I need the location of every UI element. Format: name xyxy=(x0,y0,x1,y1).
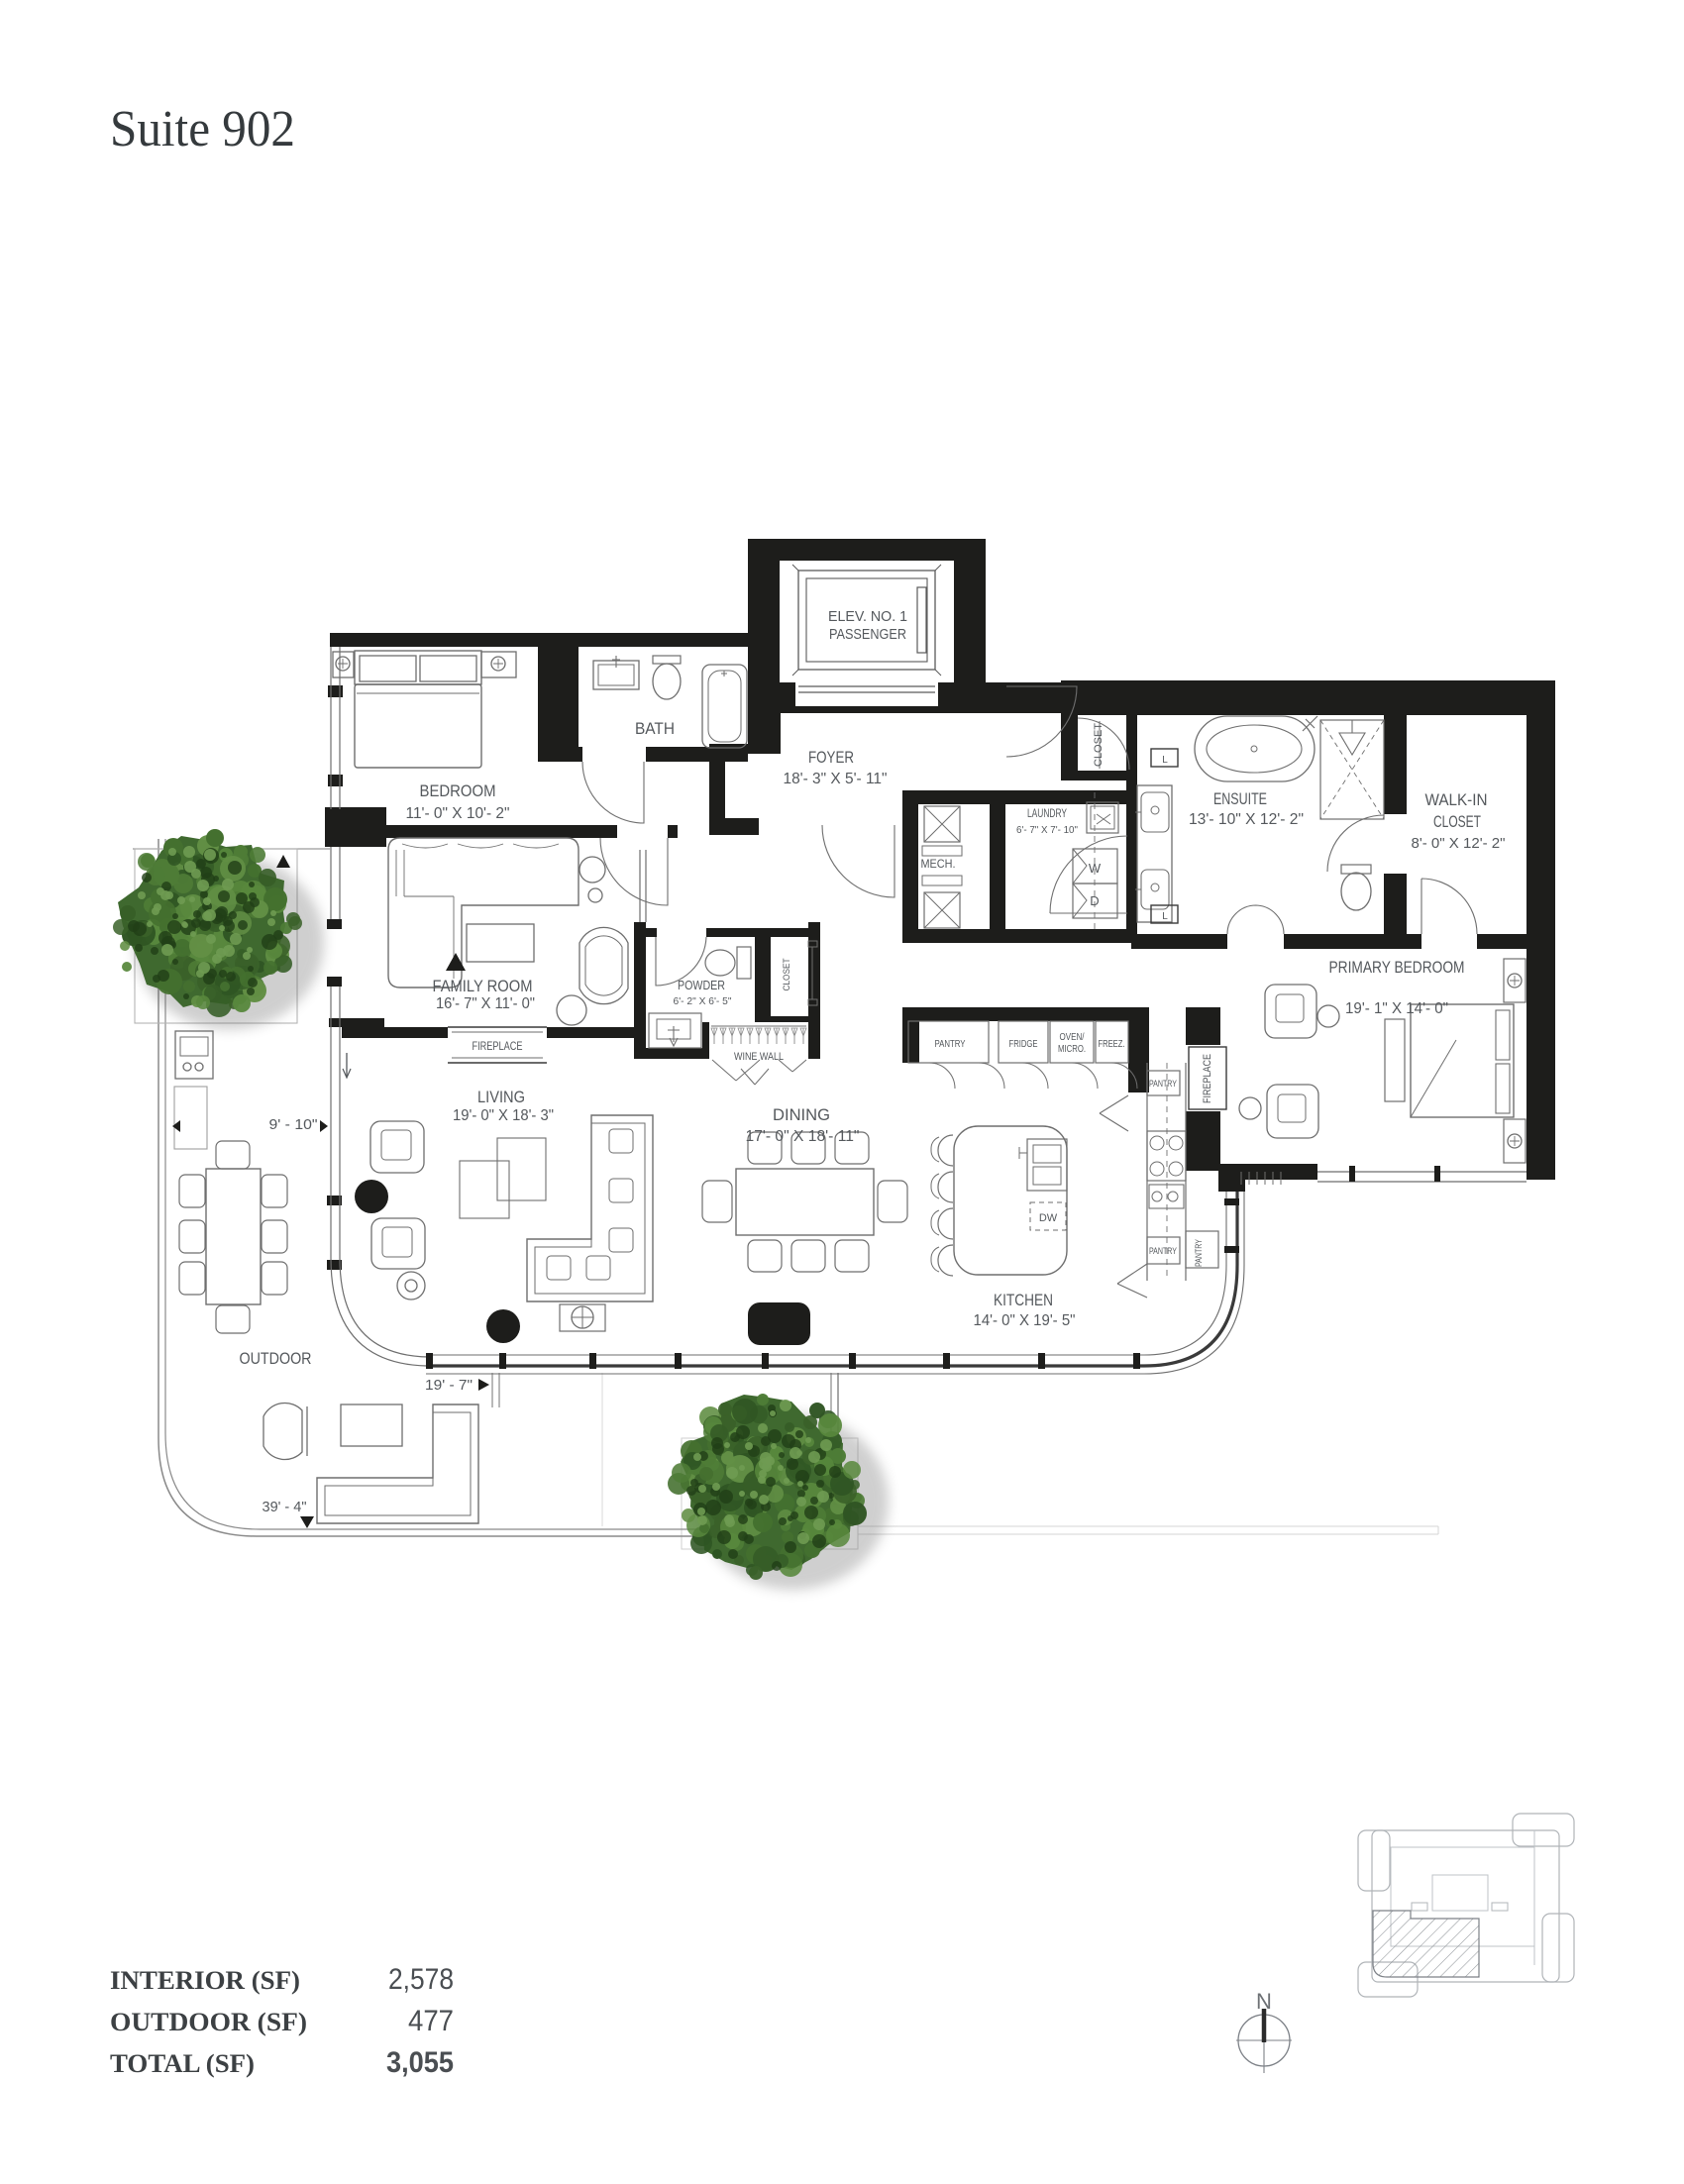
svg-text:Suite 902: Suite 902 xyxy=(110,101,295,157)
svg-text:CLOSET: CLOSET xyxy=(782,958,792,990)
svg-text:BATH: BATH xyxy=(635,719,675,738)
svg-text:LIVING: LIVING xyxy=(477,1088,525,1106)
svg-text:18'- 3" X 5'- 11": 18'- 3" X 5'- 11" xyxy=(784,771,888,787)
svg-text:CLOSET: CLOSET xyxy=(1093,723,1105,767)
svg-text:PANTRY: PANTRY xyxy=(1194,1239,1205,1267)
svg-text:16'- 7" X 11'- 0": 16'- 7" X 11'- 0" xyxy=(436,995,535,1012)
svg-text:N: N xyxy=(1256,1989,1272,2014)
svg-text:WALK-IN: WALK-IN xyxy=(1425,790,1488,809)
svg-text:OVEN/: OVEN/ xyxy=(1060,1032,1085,1043)
svg-text:POWDER: POWDER xyxy=(678,979,725,992)
svg-text:19'- 0" X 18'- 3": 19'- 0" X 18'- 3" xyxy=(453,1107,554,1124)
svg-text:KITCHEN: KITCHEN xyxy=(994,1291,1053,1309)
svg-text:OUTDOOR: OUTDOOR xyxy=(240,1349,312,1368)
svg-text:FRIDGE: FRIDGE xyxy=(1009,1038,1038,1050)
svg-text:D: D xyxy=(1090,893,1099,908)
svg-text:WINE WALL: WINE WALL xyxy=(734,1051,784,1063)
svg-text:L: L xyxy=(1162,755,1168,766)
svg-text:477: 477 xyxy=(408,2005,454,2037)
svg-text:6'- 2" X 6'- 5": 6'- 2" X 6'- 5" xyxy=(674,995,732,1007)
svg-text:ENSUITE: ENSUITE xyxy=(1213,789,1267,808)
svg-text:3,055: 3,055 xyxy=(386,2046,454,2079)
svg-text:L: L xyxy=(1162,911,1168,922)
svg-text:FOYER: FOYER xyxy=(808,748,854,767)
svg-text:ELEV. NO. 1: ELEV. NO. 1 xyxy=(828,608,907,625)
svg-text:FAMILY ROOM: FAMILY ROOM xyxy=(433,977,533,995)
svg-text:39' - 4": 39' - 4" xyxy=(263,1499,307,1515)
svg-text:INTERIOR (SF): INTERIOR (SF) xyxy=(110,1966,300,1995)
svg-text:FREEZ.: FREEZ. xyxy=(1099,1039,1125,1050)
svg-text:DW: DW xyxy=(1039,1212,1058,1224)
svg-text:6'- 7" X 7'- 10": 6'- 7" X 7'- 10" xyxy=(1016,824,1078,836)
svg-text:14'- 0" X 19'- 5": 14'- 0" X 19'- 5" xyxy=(974,1312,1076,1329)
svg-text:MECH.: MECH. xyxy=(921,857,956,871)
svg-text:BEDROOM: BEDROOM xyxy=(420,781,496,800)
svg-text:9' - 10": 9' - 10" xyxy=(269,1116,318,1133)
svg-text:8'- 0" X 12'- 2": 8'- 0" X 12'- 2" xyxy=(1412,835,1506,852)
svg-text:11'- 0" X 10'- 2": 11'- 0" X 10'- 2" xyxy=(406,805,510,822)
svg-text:FIREPLACE: FIREPLACE xyxy=(473,1039,523,1053)
svg-text:13'- 10" X 12'- 2": 13'- 10" X 12'- 2" xyxy=(1189,811,1304,828)
svg-text:PANTRY: PANTRY xyxy=(1149,1079,1177,1090)
svg-text:TOTAL (SF): TOTAL (SF) xyxy=(110,2049,255,2078)
svg-text:DINING: DINING xyxy=(773,1105,830,1124)
svg-text:17'- 0" X 18'- 11": 17'- 0" X 18'- 11" xyxy=(746,1128,860,1145)
svg-text:PANTRY: PANTRY xyxy=(1149,1246,1177,1257)
svg-text:OUTDOOR (SF): OUTDOOR (SF) xyxy=(110,2008,307,2036)
svg-text:FIREPLACE: FIREPLACE xyxy=(1202,1054,1213,1103)
svg-text:PRIMARY BEDROOM: PRIMARY BEDROOM xyxy=(1329,958,1465,977)
svg-text:W: W xyxy=(1089,861,1102,876)
svg-text:PANTRY: PANTRY xyxy=(935,1038,966,1050)
svg-text:PASSENGER: PASSENGER xyxy=(829,626,906,643)
svg-text:2,578: 2,578 xyxy=(388,1963,454,1996)
svg-text:CLOSET: CLOSET xyxy=(1433,812,1481,831)
svg-text:MICRO.: MICRO. xyxy=(1058,1044,1086,1055)
svg-text:LAUNDRY: LAUNDRY xyxy=(1027,806,1067,820)
svg-text:19'- 1" X 14'- 0": 19'- 1" X 14'- 0" xyxy=(1345,1000,1448,1017)
svg-text:19' - 7": 19' - 7" xyxy=(425,1377,473,1394)
